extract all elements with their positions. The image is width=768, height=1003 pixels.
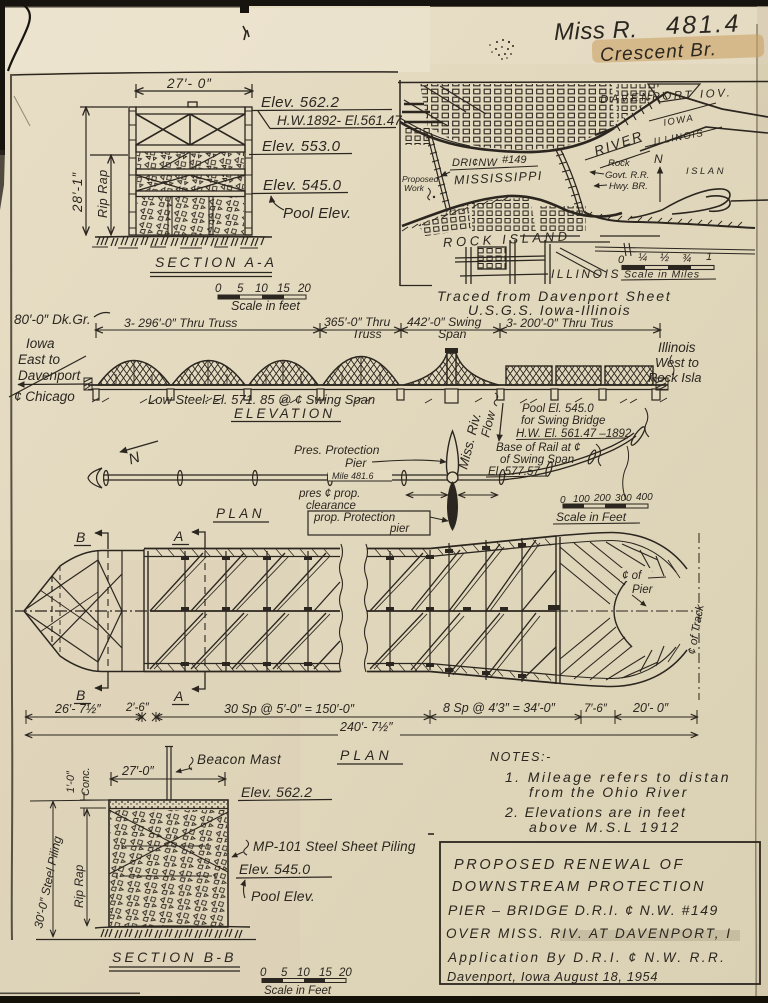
svg-text:Rip Rap: Rip Rap bbox=[72, 864, 86, 908]
svg-text:A: A bbox=[173, 688, 183, 704]
svg-text:15: 15 bbox=[319, 967, 332, 979]
svg-text:1′-0″: 1′-0″ bbox=[65, 770, 77, 793]
svg-text:26′- 7½″: 26′- 7½″ bbox=[54, 702, 101, 716]
svg-text:Pier: Pier bbox=[345, 456, 367, 470]
svg-text:Illinois: Illinois bbox=[658, 340, 696, 355]
svg-text:28′-1″: 28′-1″ bbox=[70, 171, 85, 213]
svg-text:Elev. 545.0: Elev. 545.0 bbox=[263, 177, 342, 194]
svg-text:Scale in Feet: Scale in Feet bbox=[556, 510, 627, 524]
svg-text:A: A bbox=[173, 528, 183, 544]
svg-text:Mile 481.6: Mile 481.6 bbox=[332, 471, 374, 481]
svg-text:PROPOSED RENEWAL OF: PROPOSED RENEWAL OF bbox=[454, 857, 685, 873]
svg-text:2. Elevations are in feet: 2. Elevations are in feet bbox=[504, 804, 686, 820]
svg-text:#149: #149 bbox=[502, 154, 526, 166]
svg-text:ELEVATION: ELEVATION bbox=[234, 406, 335, 421]
svg-text:Elev. 553.0: Elev. 553.0 bbox=[262, 138, 341, 155]
svg-text:Pier: Pier bbox=[632, 584, 654, 596]
svg-text:Pool Elev.: Pool Elev. bbox=[251, 888, 315, 904]
svg-text:Base of Rail at ¢: Base of Rail at ¢ bbox=[496, 442, 581, 454]
svg-text:Truss: Truss bbox=[352, 327, 382, 341]
svg-text:¾: ¾ bbox=[682, 253, 691, 265]
svg-text:Work: Work bbox=[404, 183, 425, 193]
svg-text:of Swing Span: of Swing Span bbox=[500, 454, 574, 466]
svg-text:West to: West to bbox=[655, 355, 699, 370]
svg-text:Span: Span bbox=[438, 327, 467, 341]
svg-text:B: B bbox=[76, 687, 85, 703]
svg-text:10: 10 bbox=[255, 283, 268, 295]
svg-text:3- 200′-0″ Thru Trus: 3- 200′-0″ Thru Trus bbox=[506, 316, 613, 330]
svg-text:MP-101 Steel Sheet Piling: MP-101 Steel Sheet Piling bbox=[253, 839, 416, 854]
svg-text:DOWNSTREAM PROTECTION: DOWNSTREAM PROTECTION bbox=[452, 879, 706, 895]
svg-text:PIER – BRIDGE D.R.I. ¢ N.W. #1: PIER – BRIDGE D.R.I. ¢ N.W. #149 bbox=[448, 902, 719, 918]
svg-text:for Swing Bridge: for Swing Bridge bbox=[521, 415, 605, 427]
svg-text:Scale in Feet: Scale in Feet bbox=[264, 985, 332, 997]
svg-text:OVER MISS. RIV. AT DAVENPORT,: OVER MISS. RIV. AT DAVENPORT, I bbox=[446, 926, 732, 941]
svg-text:SECTION A-A: SECTION A-A bbox=[155, 254, 277, 270]
svg-text:27′- 0″: 27′- 0″ bbox=[166, 76, 212, 91]
svg-text:Rock Isla: Rock Isla bbox=[648, 370, 701, 385]
svg-text:2′-6″: 2′-6″ bbox=[125, 702, 150, 714]
svg-text:100: 100 bbox=[573, 494, 590, 505]
svg-text:5: 5 bbox=[237, 283, 244, 295]
svg-text:ISLAN: ISLAN bbox=[686, 166, 726, 177]
svg-text:20′- 0″: 20′- 0″ bbox=[632, 701, 669, 715]
svg-text:240′- 7½″: 240′- 7½″ bbox=[339, 720, 393, 734]
svg-text:prop. Protection: prop. Protection bbox=[313, 512, 395, 524]
svg-text:Elev. 562.2: Elev. 562.2 bbox=[261, 94, 340, 111]
svg-text:400: 400 bbox=[636, 492, 653, 503]
svg-text:27′-0″: 27′-0″ bbox=[121, 764, 154, 778]
svg-text:SECTION B-B: SECTION B-B bbox=[112, 949, 237, 965]
svg-text:Pres. Protection: Pres. Protection bbox=[294, 443, 380, 457]
svg-text:Govt. R.R.: Govt. R.R. bbox=[605, 170, 649, 181]
svg-text:Elev. 545.0: Elev. 545.0 bbox=[239, 861, 310, 877]
svg-text:¢ Chicago: ¢ Chicago bbox=[14, 389, 75, 404]
svg-text:0: 0 bbox=[618, 254, 625, 266]
svg-text:20: 20 bbox=[338, 967, 352, 979]
svg-text:8 Sp @ 4′3″ = 34′-0″: 8 Sp @ 4′3″ = 34′-0″ bbox=[443, 701, 556, 715]
svg-text:Scale in Miles: Scale in Miles bbox=[624, 269, 700, 281]
svg-text:NOTES:-: NOTES:- bbox=[490, 750, 552, 764]
svg-text:clearance: clearance bbox=[306, 500, 356, 512]
svg-text:Scale in feet: Scale in feet bbox=[231, 299, 300, 313]
svg-text:30 Sp @ 5′-0″ = 150′-0″: 30 Sp @ 5′-0″ = 150′-0″ bbox=[224, 702, 355, 716]
svg-text:3- 296′-0″ Thru Truss: 3- 296′-0″ Thru Truss bbox=[124, 316, 237, 330]
svg-text:Rock: Rock bbox=[608, 158, 631, 169]
svg-text:PLAN: PLAN bbox=[340, 747, 393, 763]
svg-text:pres ¢ prop.: pres ¢ prop. bbox=[298, 488, 360, 500]
svg-text:7′-6″: 7′-6″ bbox=[584, 703, 608, 715]
svg-text:Elev. 562.2: Elev. 562.2 bbox=[241, 784, 312, 800]
svg-text:300: 300 bbox=[615, 493, 632, 504]
svg-text:above M.S.L 1912: above M.S.L 1912 bbox=[529, 819, 681, 835]
svg-text:¢ of: ¢ of bbox=[622, 570, 643, 582]
svg-text:Hwy. BR.: Hwy. BR. bbox=[609, 181, 648, 192]
svg-text:0: 0 bbox=[215, 283, 222, 295]
svg-text:Pool El. 545.0: Pool El. 545.0 bbox=[522, 403, 594, 415]
svg-text:1. Mileage refers to distan: 1. Mileage refers to distan bbox=[505, 769, 731, 785]
svg-text:0: 0 bbox=[260, 967, 267, 979]
svg-text:5: 5 bbox=[281, 967, 288, 979]
svg-text:15: 15 bbox=[277, 283, 290, 295]
svg-text:10: 10 bbox=[297, 967, 310, 979]
svg-text:½: ½ bbox=[660, 252, 669, 264]
svg-text:ILLINOIS: ILLINOIS bbox=[551, 267, 621, 281]
svg-text:from the Ohio River: from the Ohio River bbox=[529, 784, 688, 800]
svg-text:H.W.1892- El.561.47: H.W.1892- El.561.47 bbox=[277, 113, 402, 128]
svg-text:Pool Elev.: Pool Elev. bbox=[283, 205, 351, 222]
svg-text:N: N bbox=[654, 152, 663, 166]
svg-text:¼: ¼ bbox=[638, 252, 647, 264]
svg-text:Rip Rap: Rip Rap bbox=[96, 169, 110, 218]
svg-text:Low Steel: El. 571. 85 @ ¢ Swi: Low Steel: El. 571. 85 @ ¢ Swing Span bbox=[148, 392, 375, 407]
svg-text:20: 20 bbox=[297, 283, 311, 295]
svg-text:PLAN: PLAN bbox=[216, 506, 265, 521]
svg-text:East to: East to bbox=[18, 352, 61, 367]
svg-text:200: 200 bbox=[593, 493, 611, 504]
svg-text:DRI¢NW: DRI¢NW bbox=[452, 157, 499, 169]
svg-text:Davenport, Iowa August 18, 1: Davenport, Iowa August 18, 1954 bbox=[447, 969, 658, 984]
svg-text:pier: pier bbox=[389, 523, 410, 535]
svg-text:Iowa: Iowa bbox=[26, 336, 55, 351]
svg-text:Application By D.R.I. ¢ N.W.: Application By D.R.I. ¢ N.W. R.R. bbox=[447, 950, 726, 965]
svg-text:80′-0″ Dk.Gr.: 80′-0″ Dk.Gr. bbox=[14, 312, 91, 327]
svg-text:Beacon Mast: Beacon Mast bbox=[197, 752, 282, 767]
svg-text:Conc.: Conc. bbox=[80, 767, 92, 796]
svg-text:B: B bbox=[76, 529, 85, 545]
